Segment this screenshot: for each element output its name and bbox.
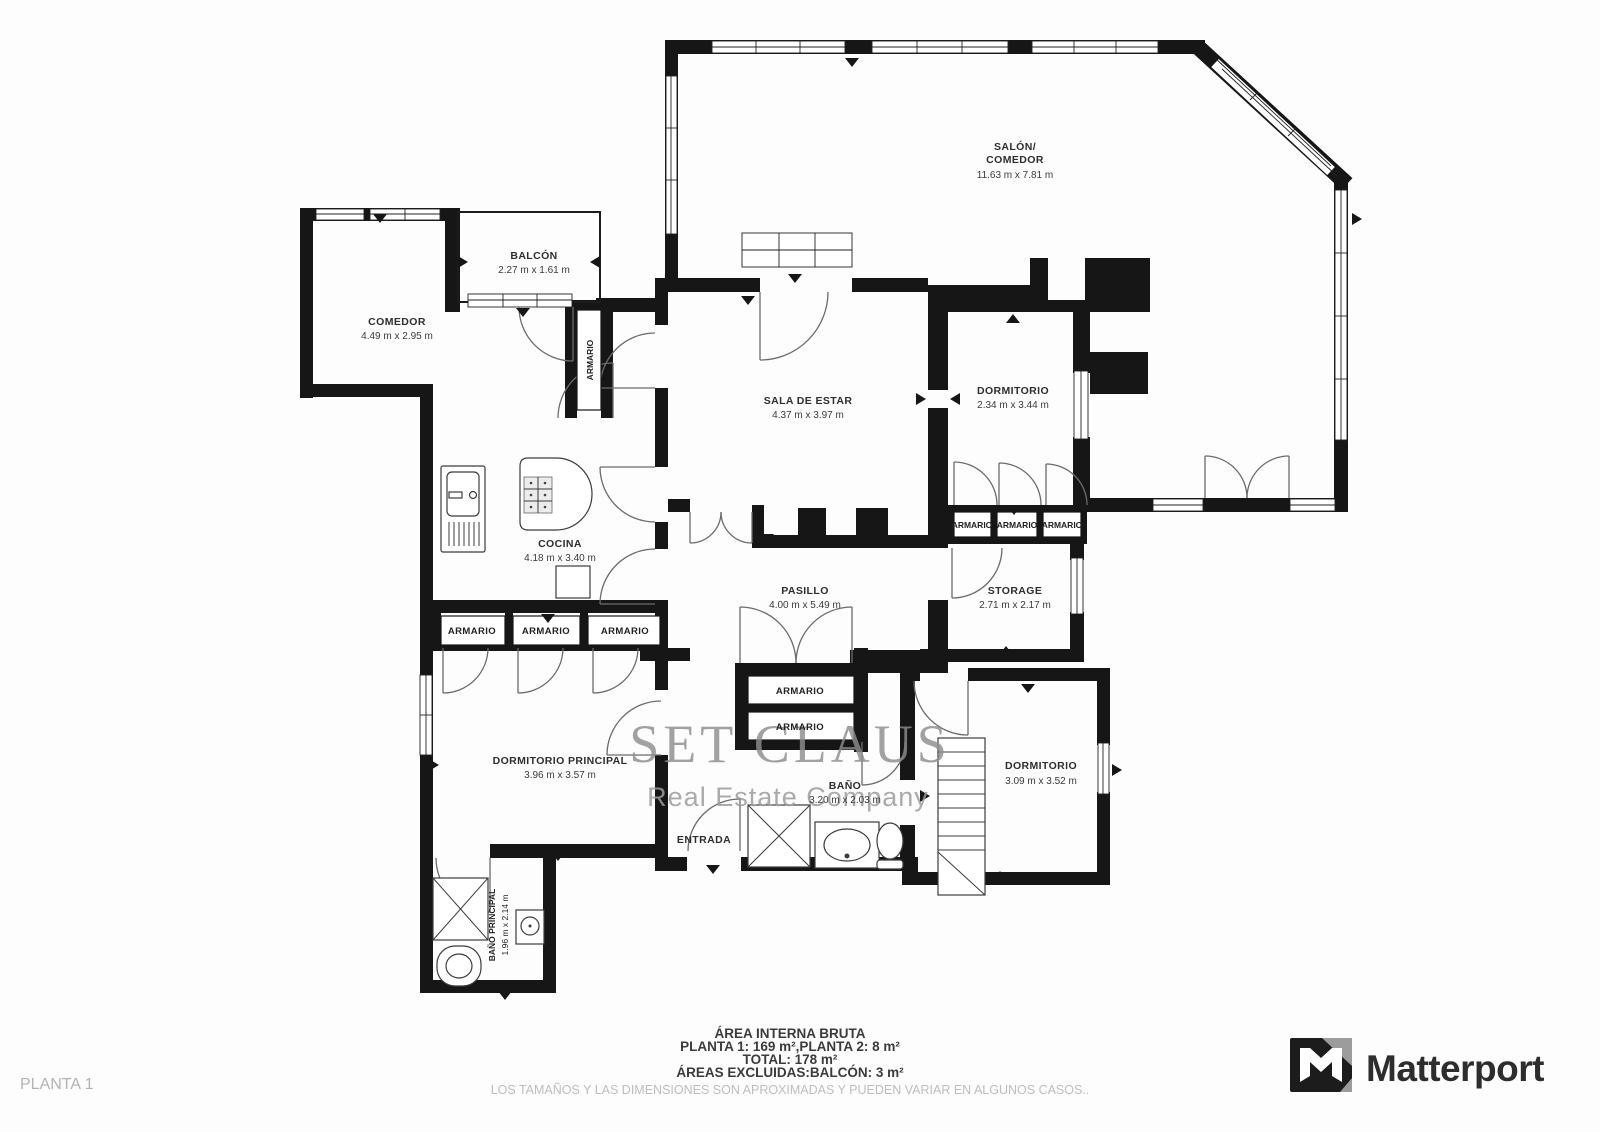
- room-label-dormitorio-1: DORMITORIO: [977, 385, 1049, 397]
- room-dims-balcon: 2.27 m x 1.61 m: [498, 265, 570, 276]
- room-label-entrada: ENTRADA: [677, 834, 731, 846]
- room-dims-storage: 2.71 m x 2.17 m: [979, 600, 1051, 611]
- room-label-cocina: COCINA: [538, 538, 582, 550]
- armario-label-3: ARMARIO: [601, 626, 649, 637]
- room-dims-sala-de-estar: 4.37 m x 3.97 m: [772, 410, 844, 421]
- footer: ÁREA INTERNA BRUTA PLANTA 1: 169 m²,PLAN…: [491, 1026, 1090, 1097]
- shower-icon-bano-principal: [433, 878, 488, 940]
- floor-plan-svg: SET CLAUS Real Estate Company SALÓN/ COM…: [0, 0, 1600, 1132]
- matterport-logo-text: Matterport: [1366, 1048, 1544, 1089]
- svg-text:1.96 m x 2.14 m: 1.96 m x 2.14 m: [500, 895, 510, 956]
- door-sala: [760, 292, 828, 360]
- room-label-dormitorio-principal: DORMITORIO PRINCIPAL: [493, 755, 628, 767]
- door-cocina-2: [600, 549, 655, 604]
- room-label-sala-de-estar: SALA DE ESTAR: [764, 395, 853, 407]
- armario-label-5: ARMARIO: [997, 520, 1038, 530]
- room-dims-bano: 3.20 m x 2.03 m: [809, 795, 881, 806]
- room-label-pasillo: PASILLO: [781, 585, 829, 597]
- kitchen-sink-icon: [556, 566, 590, 598]
- room-dims-cocina: 4.18 m x 3.40 m: [524, 553, 596, 564]
- armario-doors-dorm1: [954, 462, 1087, 505]
- room-dims-comedor: 4.49 m x 2.95 m: [361, 331, 433, 342]
- room-label-storage: STORAGE: [988, 585, 1043, 597]
- matterport-logo: Matterport: [1290, 1038, 1544, 1092]
- svg-text:BAÑO PRINCIPAL: BAÑO PRINCIPAL: [487, 889, 497, 962]
- room-dims-dormitorio-principal: 3.96 m x 3.57 m: [524, 770, 596, 781]
- room-label-balcon: BALCÓN: [510, 249, 557, 262]
- room-label-comedor: COMEDOR: [368, 316, 426, 328]
- double-door-sala-pasillo: [690, 512, 752, 543]
- room-label-dormitorio-2: DORMITORIO: [1005, 760, 1077, 772]
- armario-label-6: ARMARIO: [1042, 520, 1083, 530]
- plan-level-label: PLANTA 1: [20, 1076, 94, 1093]
- room-label-bano: BAÑO: [829, 779, 862, 792]
- sink-icon-bano-principal: [516, 910, 544, 944]
- armario-label-1: ARMARIO: [448, 626, 496, 637]
- room-label-bano-principal: BAÑO PRINCIPAL 1.96 m x 2.14 m: [487, 889, 510, 962]
- footer-excluded-line: ÁREAS EXCLUIDAS:BALCÓN: 3 m²: [676, 1065, 904, 1080]
- double-door-armario-stack: [740, 607, 852, 663]
- room-dims-salon: 11.63 m x 7.81 m: [977, 170, 1054, 181]
- room-label-salon-2: COMEDOR: [986, 154, 1044, 166]
- toilet-icon-bano-principal: [437, 946, 481, 986]
- double-door-salon: [1205, 456, 1289, 498]
- armario-label-4: ARMARIO: [952, 520, 993, 530]
- door-cocina-1: [600, 467, 655, 522]
- door-balcon: [519, 307, 573, 361]
- shower-icon-bano: [748, 805, 810, 867]
- sliding-glass-door: [742, 233, 852, 267]
- room-dims-dormitorio-2: 3.09 m x 3.52 m: [1005, 776, 1077, 787]
- footer-disclaimer: LOS TAMAÑOS Y LAS DIMENSIONES SON APROXI…: [491, 1083, 1090, 1097]
- toilet-icon-bano: [877, 823, 903, 869]
- armario-doors-dormp: [443, 648, 638, 693]
- floorplan-page: SET CLAUS Real Estate Company SALÓN/ COM…: [0, 0, 1600, 1132]
- kitchen-island-icon: [520, 458, 592, 530]
- sink-icon-bano: [815, 822, 879, 868]
- room-label-salon: SALÓN/: [994, 140, 1036, 153]
- watermark-subtitle: Real Estate Company: [647, 782, 929, 812]
- armario-label-7: ARMARIO: [776, 686, 824, 697]
- matterport-icon: [1290, 1038, 1352, 1092]
- armario-label-vertical: ARMARIO: [585, 339, 595, 380]
- room-dims-pasillo: 4.00 m x 5.49 m: [769, 600, 841, 611]
- armario-label-2: ARMARIO: [522, 626, 570, 637]
- room-dims-dormitorio-1: 2.34 m x 3.44 m: [977, 400, 1049, 411]
- armario-label-8: ARMARIO: [776, 722, 824, 733]
- svg-text:ARMARIO: ARMARIO: [585, 339, 595, 380]
- fridge-icon: [441, 466, 485, 552]
